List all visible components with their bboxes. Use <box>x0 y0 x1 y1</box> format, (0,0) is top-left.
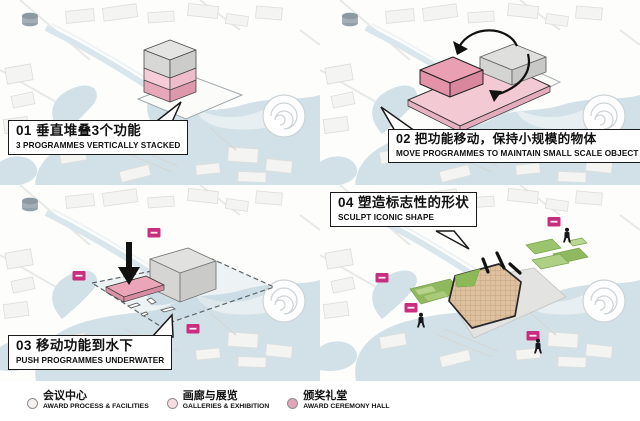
step-label-04: 04 塑造标志性的形状 SCULPT ICONIC SHAPE <box>330 192 477 227</box>
step-03-title-en: PUSH PROGRAMMES UNDERWATER <box>16 356 164 365</box>
panel-01-map <box>0 0 320 185</box>
step-04-title-zh: 04 塑造标志性的形状 <box>338 195 469 212</box>
step-04-title-en: SCULPT ICONIC SHAPE <box>338 213 469 222</box>
step-label-03: 03 移动功能到水下 PUSH PROGRAMMES UNDERWATER <box>8 335 172 370</box>
map-pin-icon <box>148 228 161 238</box>
map-pin-icon <box>405 303 418 313</box>
stacked-programmes-building <box>144 40 196 102</box>
map-pin-icon <box>376 273 389 283</box>
step-label-02: 02 把功能移动，保持小规模的物体 MOVE PROGRAMMES TO MAI… <box>388 129 640 163</box>
legend-swatch-icon <box>27 398 38 409</box>
step-03-title-zh: 03 移动功能到水下 <box>16 338 164 355</box>
step-label-01: 01 垂直堆叠3个功能 3 PROGRAMMES VERTICALLY STAC… <box>8 120 188 155</box>
legend-swatch-icon <box>287 398 298 409</box>
legend-label-zh: 画廊与展览 <box>183 391 269 403</box>
legend-label-en: AWARD PROCESS & FACILITIES <box>43 403 149 410</box>
legend-item-galleries: 画廊与展览 GALLERIES & EXHIBITION <box>167 391 269 410</box>
map-pin-icon <box>187 324 200 334</box>
legend-item-award-process: 会议中心 AWARD PROCESS & FACILITIES <box>27 391 149 410</box>
map-pin-icon <box>548 217 561 227</box>
legend-label-en: GALLERIES & EXHIBITION <box>183 403 269 410</box>
step-01-title-en: 3 PROGRAMMES VERTICALLY STACKED <box>16 141 180 150</box>
legend-item-ceremony-hall: 颁奖礼堂 AWARD CEREMONY HALL <box>287 391 389 410</box>
legend-label-zh: 会议中心 <box>43 391 149 403</box>
legend: 会议中心 AWARD PROCESS & FACILITIES 画廊与展览 GA… <box>0 381 640 421</box>
map-pin-icon <box>73 271 86 281</box>
step-02-title-en: MOVE PROGRAMMES TO MAINTAIN SMALL SCALE … <box>396 149 639 158</box>
process-diagram: 01 垂直堆叠3个功能 3 PROGRAMMES VERTICALLY STAC… <box>0 0 640 421</box>
legend-label-zh: 颁奖礼堂 <box>303 391 389 403</box>
step-02-title-zh: 02 把功能移动，保持小规模的物体 <box>396 132 639 148</box>
step-01-title-zh: 01 垂直堆叠3个功能 <box>16 123 180 140</box>
legend-swatch-icon <box>167 398 178 409</box>
legend-label-en: AWARD CEREMONY HALL <box>303 403 389 410</box>
